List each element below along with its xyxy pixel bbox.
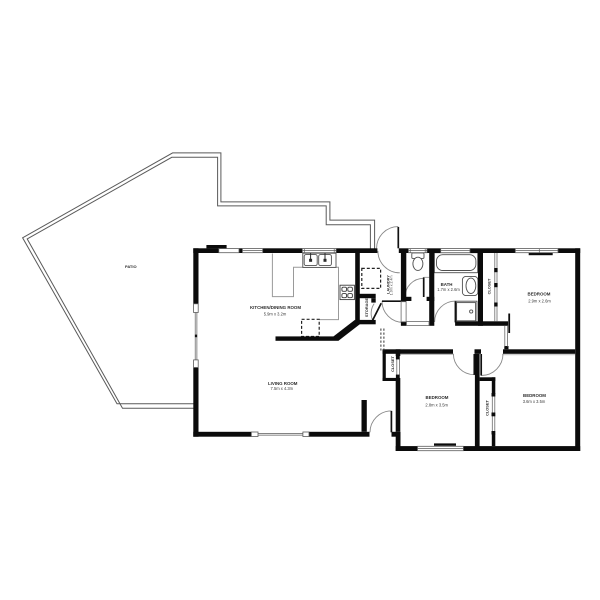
svg-text:BEDROOM: BEDROOM [426, 395, 449, 400]
svg-text:2.8m x 3.5m: 2.8m x 3.5m [425, 402, 448, 407]
svg-text:CLOSET: CLOSET [390, 355, 395, 371]
svg-text:BATH: BATH [441, 282, 453, 287]
svg-text:2.9m x 2.6m: 2.9m x 2.6m [528, 298, 551, 303]
svg-text:PATIO: PATIO [125, 264, 137, 269]
svg-text:1.0m x 2.4m: 1.0m x 2.4m [390, 276, 394, 296]
svg-text:LIVING ROOM: LIVING ROOM [268, 381, 298, 386]
svg-text:STORAGE: STORAGE [364, 298, 369, 318]
svg-text:CLOSET: CLOSET [487, 278, 492, 294]
svg-text:1.7m x 2.6m: 1.7m x 2.6m [437, 287, 460, 292]
svg-text:CLOSET: CLOSET [484, 399, 489, 415]
svg-text:BEDROOM: BEDROOM [523, 393, 546, 398]
svg-text:3.6m x 3.5m: 3.6m x 3.5m [523, 399, 546, 404]
svg-text:BEDROOM: BEDROOM [528, 291, 551, 296]
svg-text:5.9m x 3.2m: 5.9m x 3.2m [264, 311, 287, 316]
svg-text:KITCHEN/DINING ROOM: KITCHEN/DINING ROOM [250, 305, 301, 310]
svg-text:7.5m x 4.3m: 7.5m x 4.3m [271, 386, 294, 391]
